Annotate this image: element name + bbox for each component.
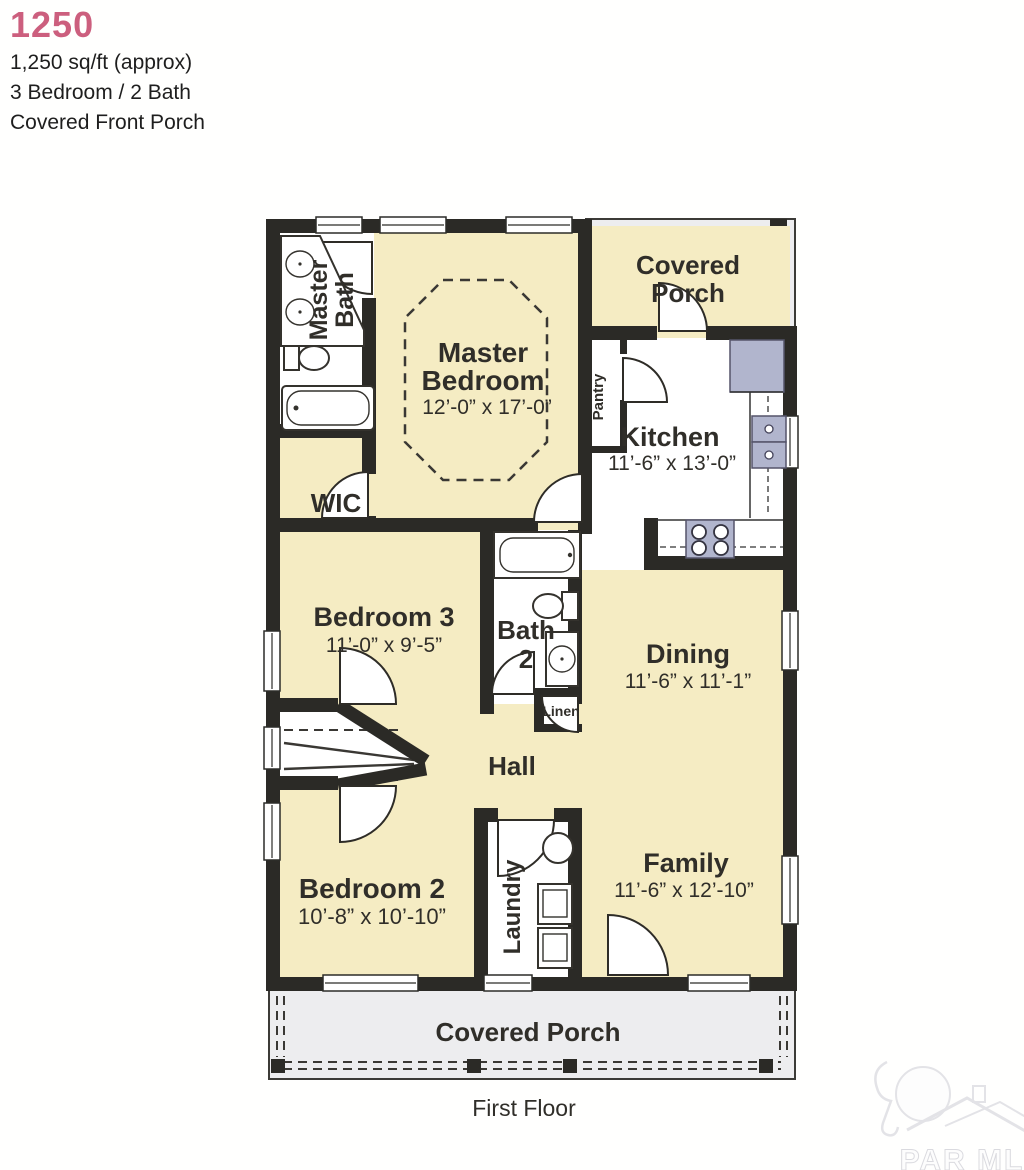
window [688,975,750,991]
label-master-bedroom-1: Master [438,337,528,368]
label-bath2-2: 2 [519,644,533,674]
label-laundry: Laundry [499,859,526,954]
label-wic: WIC [311,488,362,518]
porch-post [467,1059,481,1073]
label-linen: Linen [542,703,579,719]
label-bedroom3: Bedroom 3 [313,602,454,632]
refrigerator [730,340,784,392]
label-hall: Hall [488,751,536,781]
window [782,611,798,670]
label-bedroom2-dims: 10’-8” x 10’-10” [298,904,446,929]
label-pantry: Pantry [590,373,607,420]
window [323,975,418,991]
label-master-bedroom-dims: 12’-0” x 17’-0” [422,396,552,419]
window [316,217,362,233]
porch-post [759,1059,773,1073]
water-heater [543,833,573,863]
plan-header: 1250 1,250 sq/ft (approx) 3 Bedroom / 2 … [10,4,205,136]
burner [714,525,728,539]
porch-post [563,1059,577,1073]
toilet [284,346,299,370]
label-family: Family [643,848,729,878]
window [264,631,280,691]
window [484,975,532,991]
toilet [562,592,578,620]
window [264,803,280,860]
label-porch-front: Covered Porch [436,1017,621,1047]
label-dining: Dining [646,639,730,669]
label-kitchen-dims: 11’-6” x 13’-0” [608,452,736,475]
burner [714,541,728,555]
window [264,727,280,769]
plan-beds-baths: 3 Bedroom / 2 Bath [10,79,205,106]
porch-post [271,1059,285,1073]
burner [692,525,706,539]
window [782,856,798,924]
floor-plan: PAR MLS [0,0,1024,1170]
mls-watermark: PAR MLS [863,1062,1024,1170]
label-porch-rear-2: Porch [651,278,725,308]
window [506,217,572,233]
label-bedroom2: Bedroom 2 [299,873,445,904]
label-dining-dims: 11’-6” x 11’-1” [625,670,751,693]
label-bedroom3-dims: 11’-0” x 9’-5” [326,634,442,657]
floor-plan-page: 1250 1,250 sq/ft (approx) 3 Bedroom / 2 … [0,0,1024,1170]
label-family-dims: 11’-6” x 12’-10” [614,879,754,902]
label-master-bath-1: Master [305,259,333,340]
plan-sqft: 1,250 sq/ft (approx) [10,49,205,76]
label-kitchen: Kitchen [620,422,719,452]
watermark-text: PAR MLS [900,1144,1024,1170]
label-first-floor: First Floor [472,1095,576,1121]
plan-porch-note: Covered Front Porch [10,109,205,136]
label-bath2-1: Bath [497,615,555,645]
label-master-bedroom-2: Bedroom [422,365,545,396]
laundry-fixtures [538,833,573,968]
burner [692,541,706,555]
window [380,217,446,233]
label-porch-rear-1: Covered [636,250,740,280]
plan-number: 1250 [10,4,205,46]
label-master-bath-2: Bath [331,272,359,328]
